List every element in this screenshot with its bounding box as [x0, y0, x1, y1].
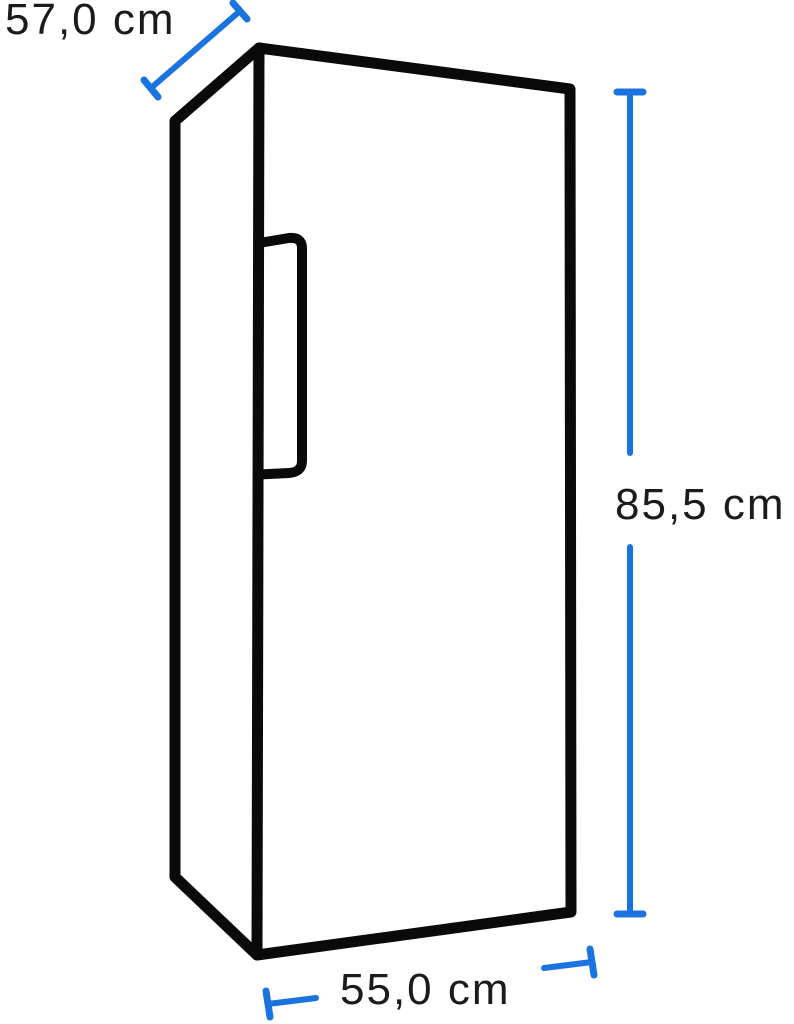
width-line-left [268, 998, 316, 1004]
cabinet-outline [175, 48, 571, 955]
width-line-right [544, 962, 592, 968]
refrigerator-cabinet [175, 48, 571, 955]
width-tick-right [590, 949, 594, 975]
depth-dimension-label: 57,0 cm [5, 0, 176, 42]
refrigerator-dimension-diagram: 57,0 cm 85,5 cm 55,0 cm [0, 0, 794, 1024]
width-dimension-label: 55,0 cm [340, 968, 511, 1012]
door-front-edge [257, 48, 259, 955]
height-dimension-label: 85,5 cm [615, 483, 786, 527]
width-tick-left [266, 991, 270, 1017]
door-handle [259, 238, 302, 475]
